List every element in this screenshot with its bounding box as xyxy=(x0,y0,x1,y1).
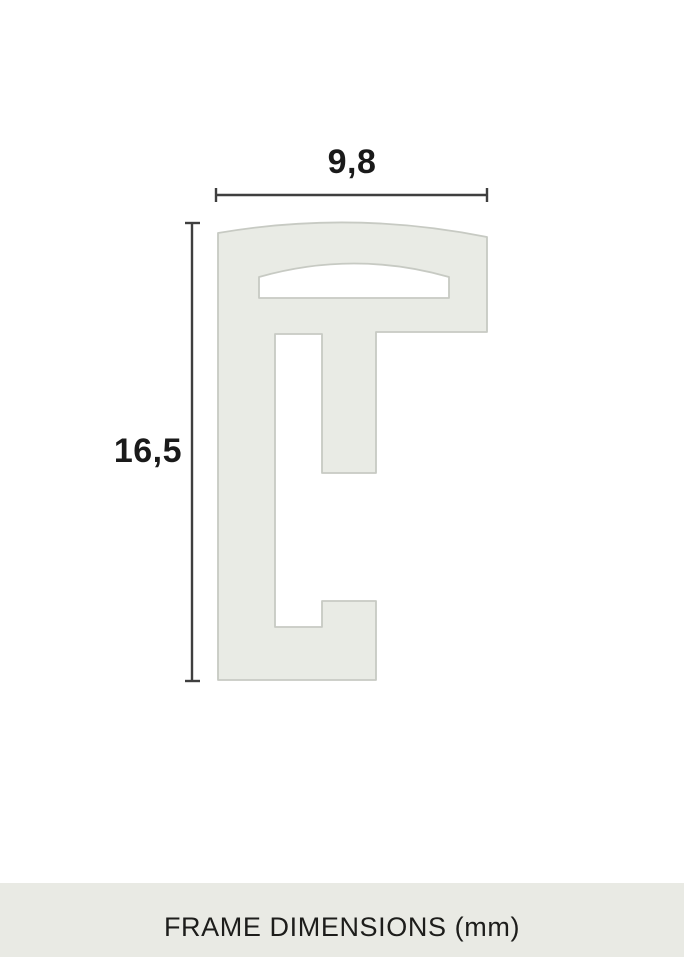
height-dimension-line xyxy=(185,223,200,681)
caption-bar: FRAME DIMENSIONS (mm) xyxy=(0,883,684,957)
width-dimension-label: 9,8 xyxy=(252,143,452,181)
frame-dimensions-figure: 9,8 16,5 FRAME DIMENSIONS (mm) xyxy=(0,0,684,957)
caption-text: FRAME DIMENSIONS (mm) xyxy=(164,912,520,943)
width-dimension-line xyxy=(216,188,487,202)
height-dimension-label: 16,5 xyxy=(40,432,182,470)
